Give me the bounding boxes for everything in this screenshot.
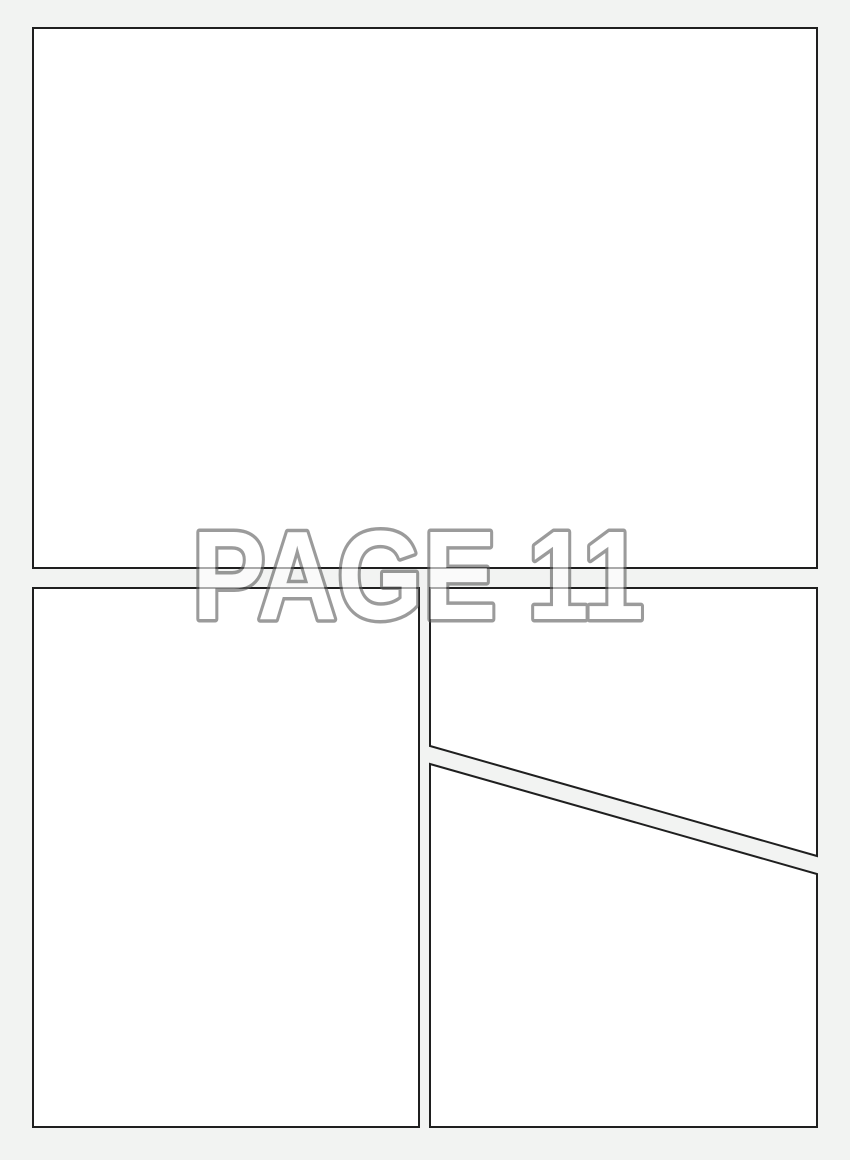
panel-top-full-width (33, 28, 817, 568)
page-number-label: PAGE 11 (192, 505, 644, 646)
comic-page-template: PAGE 11 (0, 0, 850, 1160)
page-canvas: PAGE 11 (0, 0, 850, 1160)
panel-bottom-left (33, 588, 419, 1127)
